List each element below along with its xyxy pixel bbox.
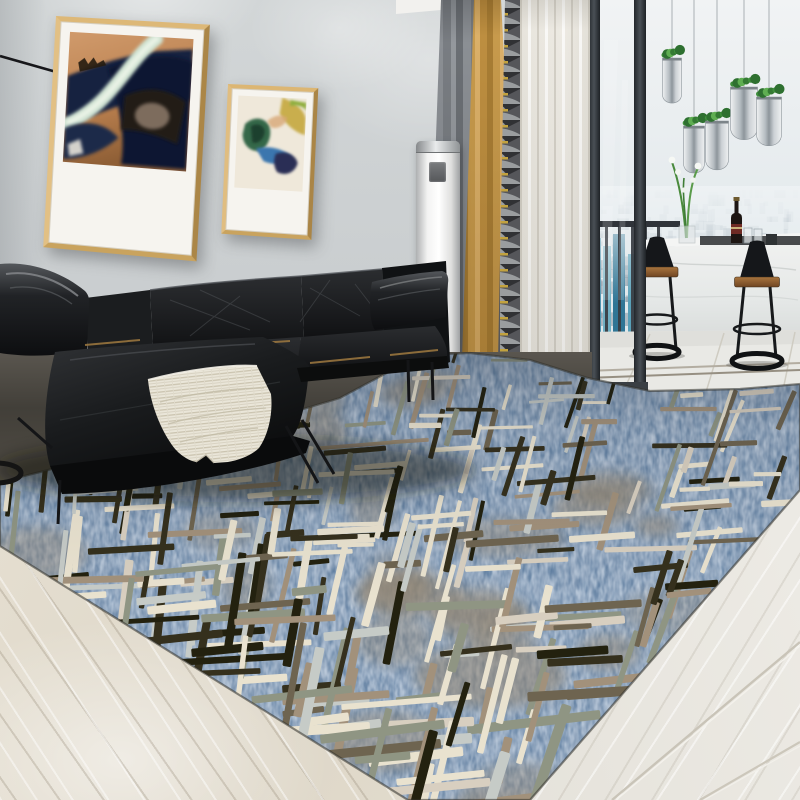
- sofa: [0, 0, 800, 800]
- living-room-scene: [0, 0, 800, 800]
